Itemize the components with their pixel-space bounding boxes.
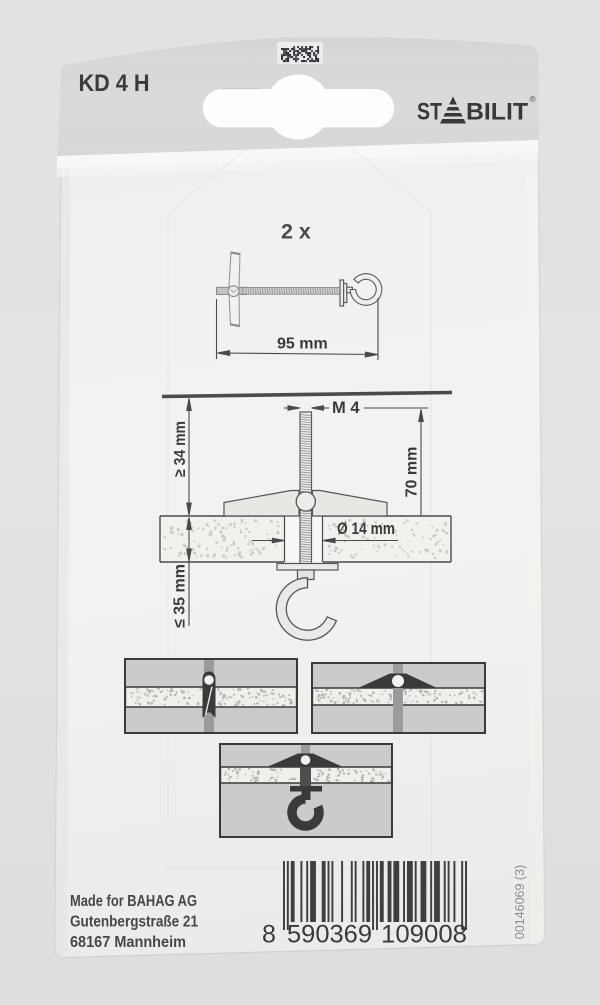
svg-text:8: 8 [262,921,276,949]
svg-text:70 mm: 70 mm [404,447,421,498]
svg-text:®: ® [530,94,537,104]
svg-text:109008: 109008 [381,921,467,949]
svg-text:M 4: M 4 [332,399,360,417]
svg-text:Ø 14 mm: Ø 14 mm [337,519,395,538]
svg-text:2 x: 2 x [281,220,311,244]
svg-text:≤ 35 mm: ≤ 35 mm [172,564,189,628]
svg-text:ST: ST [417,99,442,126]
svg-text:BILIT: BILIT [466,99,528,126]
svg-text:00146069 (3): 00146069 (3) [513,865,527,939]
svg-text:95 mm: 95 mm [277,336,328,353]
svg-text:KD 4 H: KD 4 H [79,70,150,97]
svg-text:68167 Mannheim: 68167 Mannheim [70,934,186,951]
svg-text:≥ 34 mm: ≥ 34 mm [172,421,189,477]
svg-text:Made for BAHAG AG: Made for BAHAG AG [70,893,197,910]
svg-text:590369: 590369 [287,921,372,949]
svg-text:Gutenbergstraße 21: Gutenbergstraße 21 [70,914,198,931]
